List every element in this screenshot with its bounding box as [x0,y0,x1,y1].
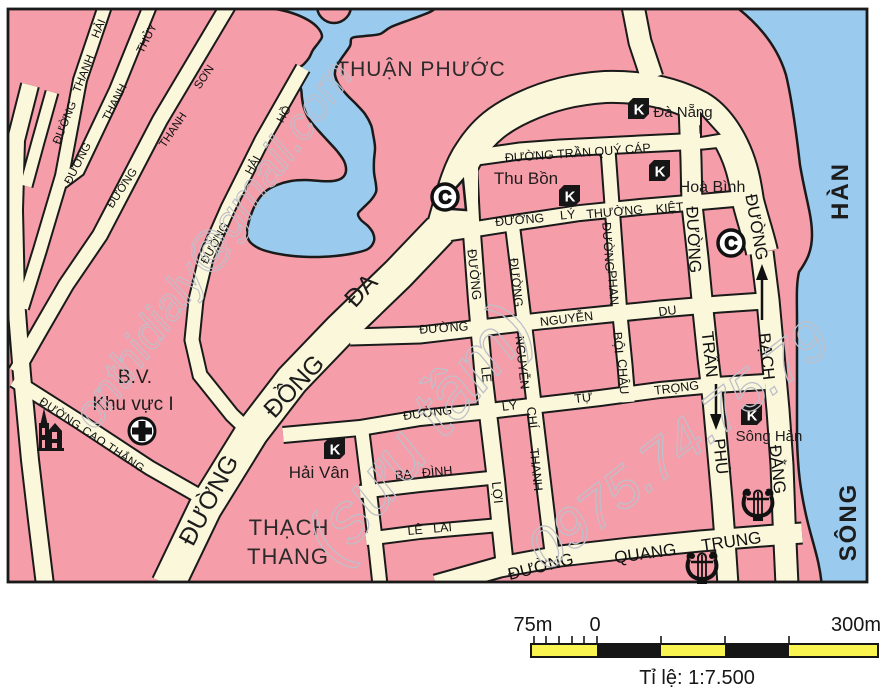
svg-text:K: K [634,102,645,119]
svg-text:KIỆT: KIỆT [655,199,684,216]
svg-text:ĐƯỜNG: ĐƯỜNG [682,206,704,274]
svg-text:DU: DU [658,303,678,319]
svg-text:BỘI: BỘI [610,331,626,354]
svg-text:PHAN: PHAN [605,270,621,306]
svg-text:LỢI: LỢI [489,481,506,504]
svg-text:LÝ: LÝ [501,397,519,414]
svg-text:HÀN: HÀN [826,162,854,220]
svg-text:75m: 75m [514,614,553,636]
svg-text:K: K [565,189,576,206]
svg-text:CHÍ: CHÍ [524,406,541,430]
svg-text:CHÂU: CHÂU [615,358,632,394]
svg-text:K: K [655,164,666,181]
svg-text:C: C [439,188,452,208]
svg-text:SÔNG: SÔNG [834,483,862,562]
svg-text:Hoà Bình: Hoà Bình [679,179,746,196]
svg-text:THUẬN PHƯỚC: THUẬN PHƯỚC [336,58,505,81]
svg-text:TỰ: TỰ [574,390,594,406]
svg-text:300m: 300m [831,614,881,636]
svg-text:Thu Bồn: Thu Bồn [494,169,558,188]
svg-text:LÝ: LÝ [559,206,576,222]
svg-text:K: K [330,442,341,459]
svg-text:0: 0 [589,614,600,636]
svg-text:C: C [725,234,738,254]
svg-text:Tỉ lệ: 1:7.500: Tỉ lệ: 1:7.500 [639,667,755,689]
svg-text:Đà Nẵng: Đà Nẵng [653,104,712,121]
